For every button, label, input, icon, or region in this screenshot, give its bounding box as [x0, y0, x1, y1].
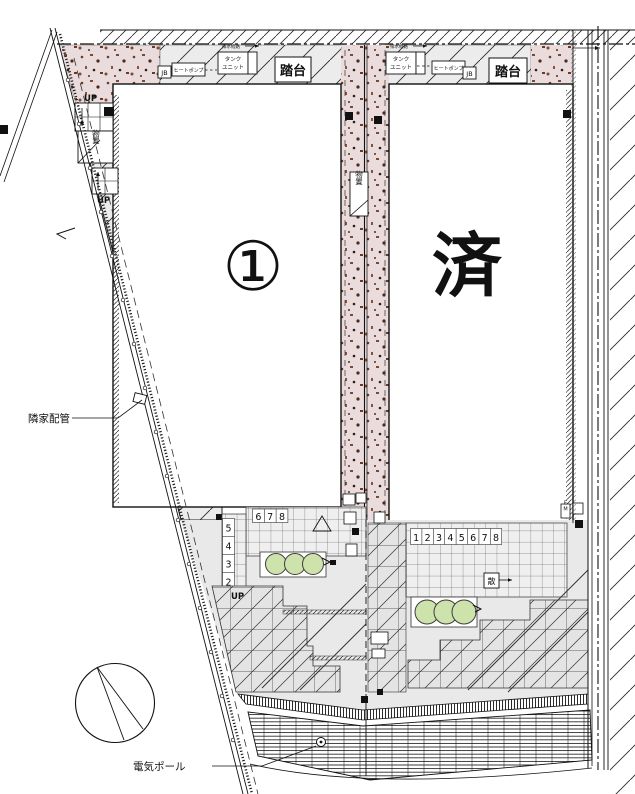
gravel-northeast	[531, 45, 573, 85]
bush	[452, 600, 476, 624]
unit1-number-label: ①	[223, 228, 284, 307]
storage-label: 物置	[354, 169, 363, 186]
east-neighbor-hatch	[610, 30, 635, 794]
step-platform-label: 踏台	[495, 64, 521, 80]
drain-route-note: 排水経路	[222, 43, 240, 50]
step-number: 4	[225, 542, 231, 553]
tank-unit-line2: ユニット	[390, 64, 412, 71]
survey-circle	[76, 664, 155, 743]
boundary-arrow-mark	[57, 228, 75, 239]
center-walk-paving	[368, 523, 406, 692]
bush	[303, 554, 324, 575]
left-planter	[260, 552, 336, 577]
step-number: 5	[225, 524, 231, 535]
drain-route-note: 排水経路	[390, 43, 408, 50]
building-unit1: ①	[113, 84, 341, 507]
site-plan-drawing: 物置 JB ヒートポンプ タンク ユニット 排水経路 踏台 タンク ユニット 排…	[0, 0, 635, 794]
electric-pole-label: 電気ポール	[133, 760, 186, 773]
tank-unit-line1: タンク	[393, 55, 410, 63]
building-unit2: 済	[389, 84, 573, 523]
tank-unit-line2: ユニット	[222, 64, 244, 71]
center-storage: 物置	[350, 169, 368, 216]
tank-unit-line1: タンク	[225, 55, 242, 63]
north-boundary	[57, 30, 635, 44]
step-number: 2	[425, 533, 431, 544]
neighbor-piping-label: 隣家配管	[28, 412, 70, 425]
right-planter	[411, 597, 481, 627]
step-number: 7	[482, 533, 488, 544]
up-label-3: UP	[231, 592, 244, 602]
up-label-1: UP	[84, 94, 97, 104]
heat-pump-label: ヒートポンプ	[174, 67, 204, 74]
em-meter-label: EM	[563, 501, 569, 513]
step-number: 1	[413, 533, 419, 544]
unit2-sold-label: 済	[432, 224, 503, 307]
right-step-numbers-row: 1 2 3 4 5 6 7 8	[411, 529, 502, 545]
site-plan-page: 物置 JB ヒートポンプ タンク ユニット 排水経路 踏台 タンク ユニット 排…	[0, 0, 635, 794]
step-number: 3	[225, 560, 231, 571]
west-porches: UP 物置 UP	[75, 94, 118, 206]
step-number: 8	[279, 512, 285, 523]
bush	[266, 554, 287, 575]
step-platform-label: 踏台	[280, 63, 306, 79]
road-band	[248, 710, 592, 780]
jb-box-label: JB	[160, 69, 167, 77]
north-neighbor-hatch	[100, 30, 635, 44]
step-number: 6	[255, 512, 261, 523]
heat-pump-label: ヒートポンプ	[434, 65, 464, 72]
jb-box-label: JB	[465, 70, 472, 78]
step-number: 5	[459, 533, 465, 544]
step-number: 3	[436, 533, 442, 544]
step-number: 4	[447, 533, 453, 544]
step-number: 6	[470, 533, 476, 544]
storage-label: 物置	[91, 128, 100, 145]
sprinkler-label: 散	[488, 576, 496, 586]
step-number: 7	[267, 512, 273, 523]
left-step-numbers-row: 6 7 8	[253, 509, 288, 523]
step-number: 8	[493, 533, 499, 544]
